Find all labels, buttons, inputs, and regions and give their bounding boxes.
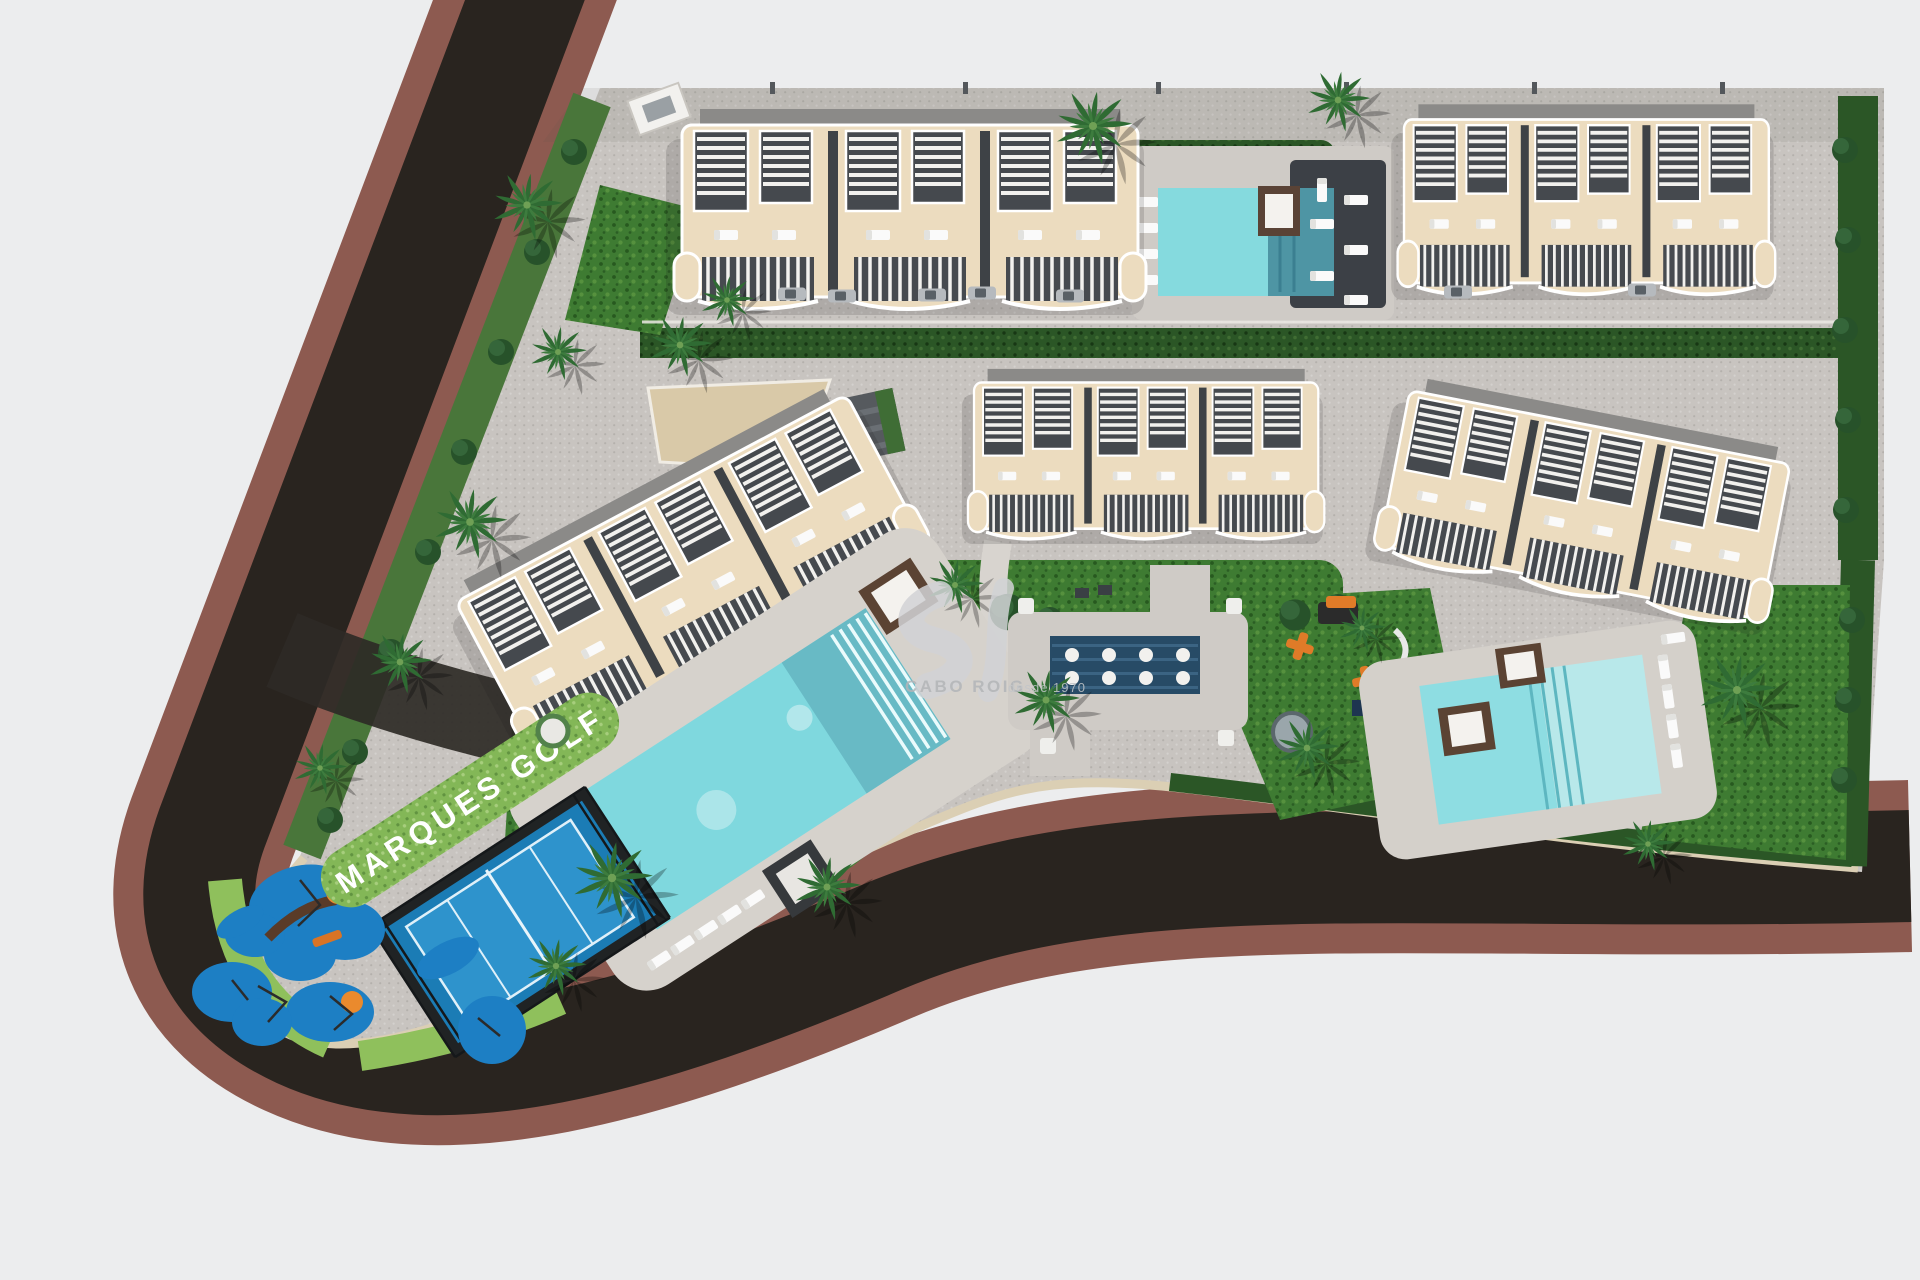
garden-kiosk: [538, 716, 568, 746]
apartment-block-1: [666, 109, 1146, 315]
site-plan-render: MARQUES GOLF: [0, 0, 1920, 1280]
apartment-block-4: [962, 369, 1324, 544]
north-pool: [1132, 146, 1394, 320]
pool-water: [1158, 188, 1268, 296]
watermark-tagline: desde 1970: [1008, 680, 1086, 695]
apartment-block-2: [1391, 104, 1775, 300]
site-plan-image: MARQUES GOLF: [0, 0, 1920, 1280]
hedge-strip: [640, 328, 1852, 358]
right-hedge-diagonal: [1850, 560, 1858, 866]
